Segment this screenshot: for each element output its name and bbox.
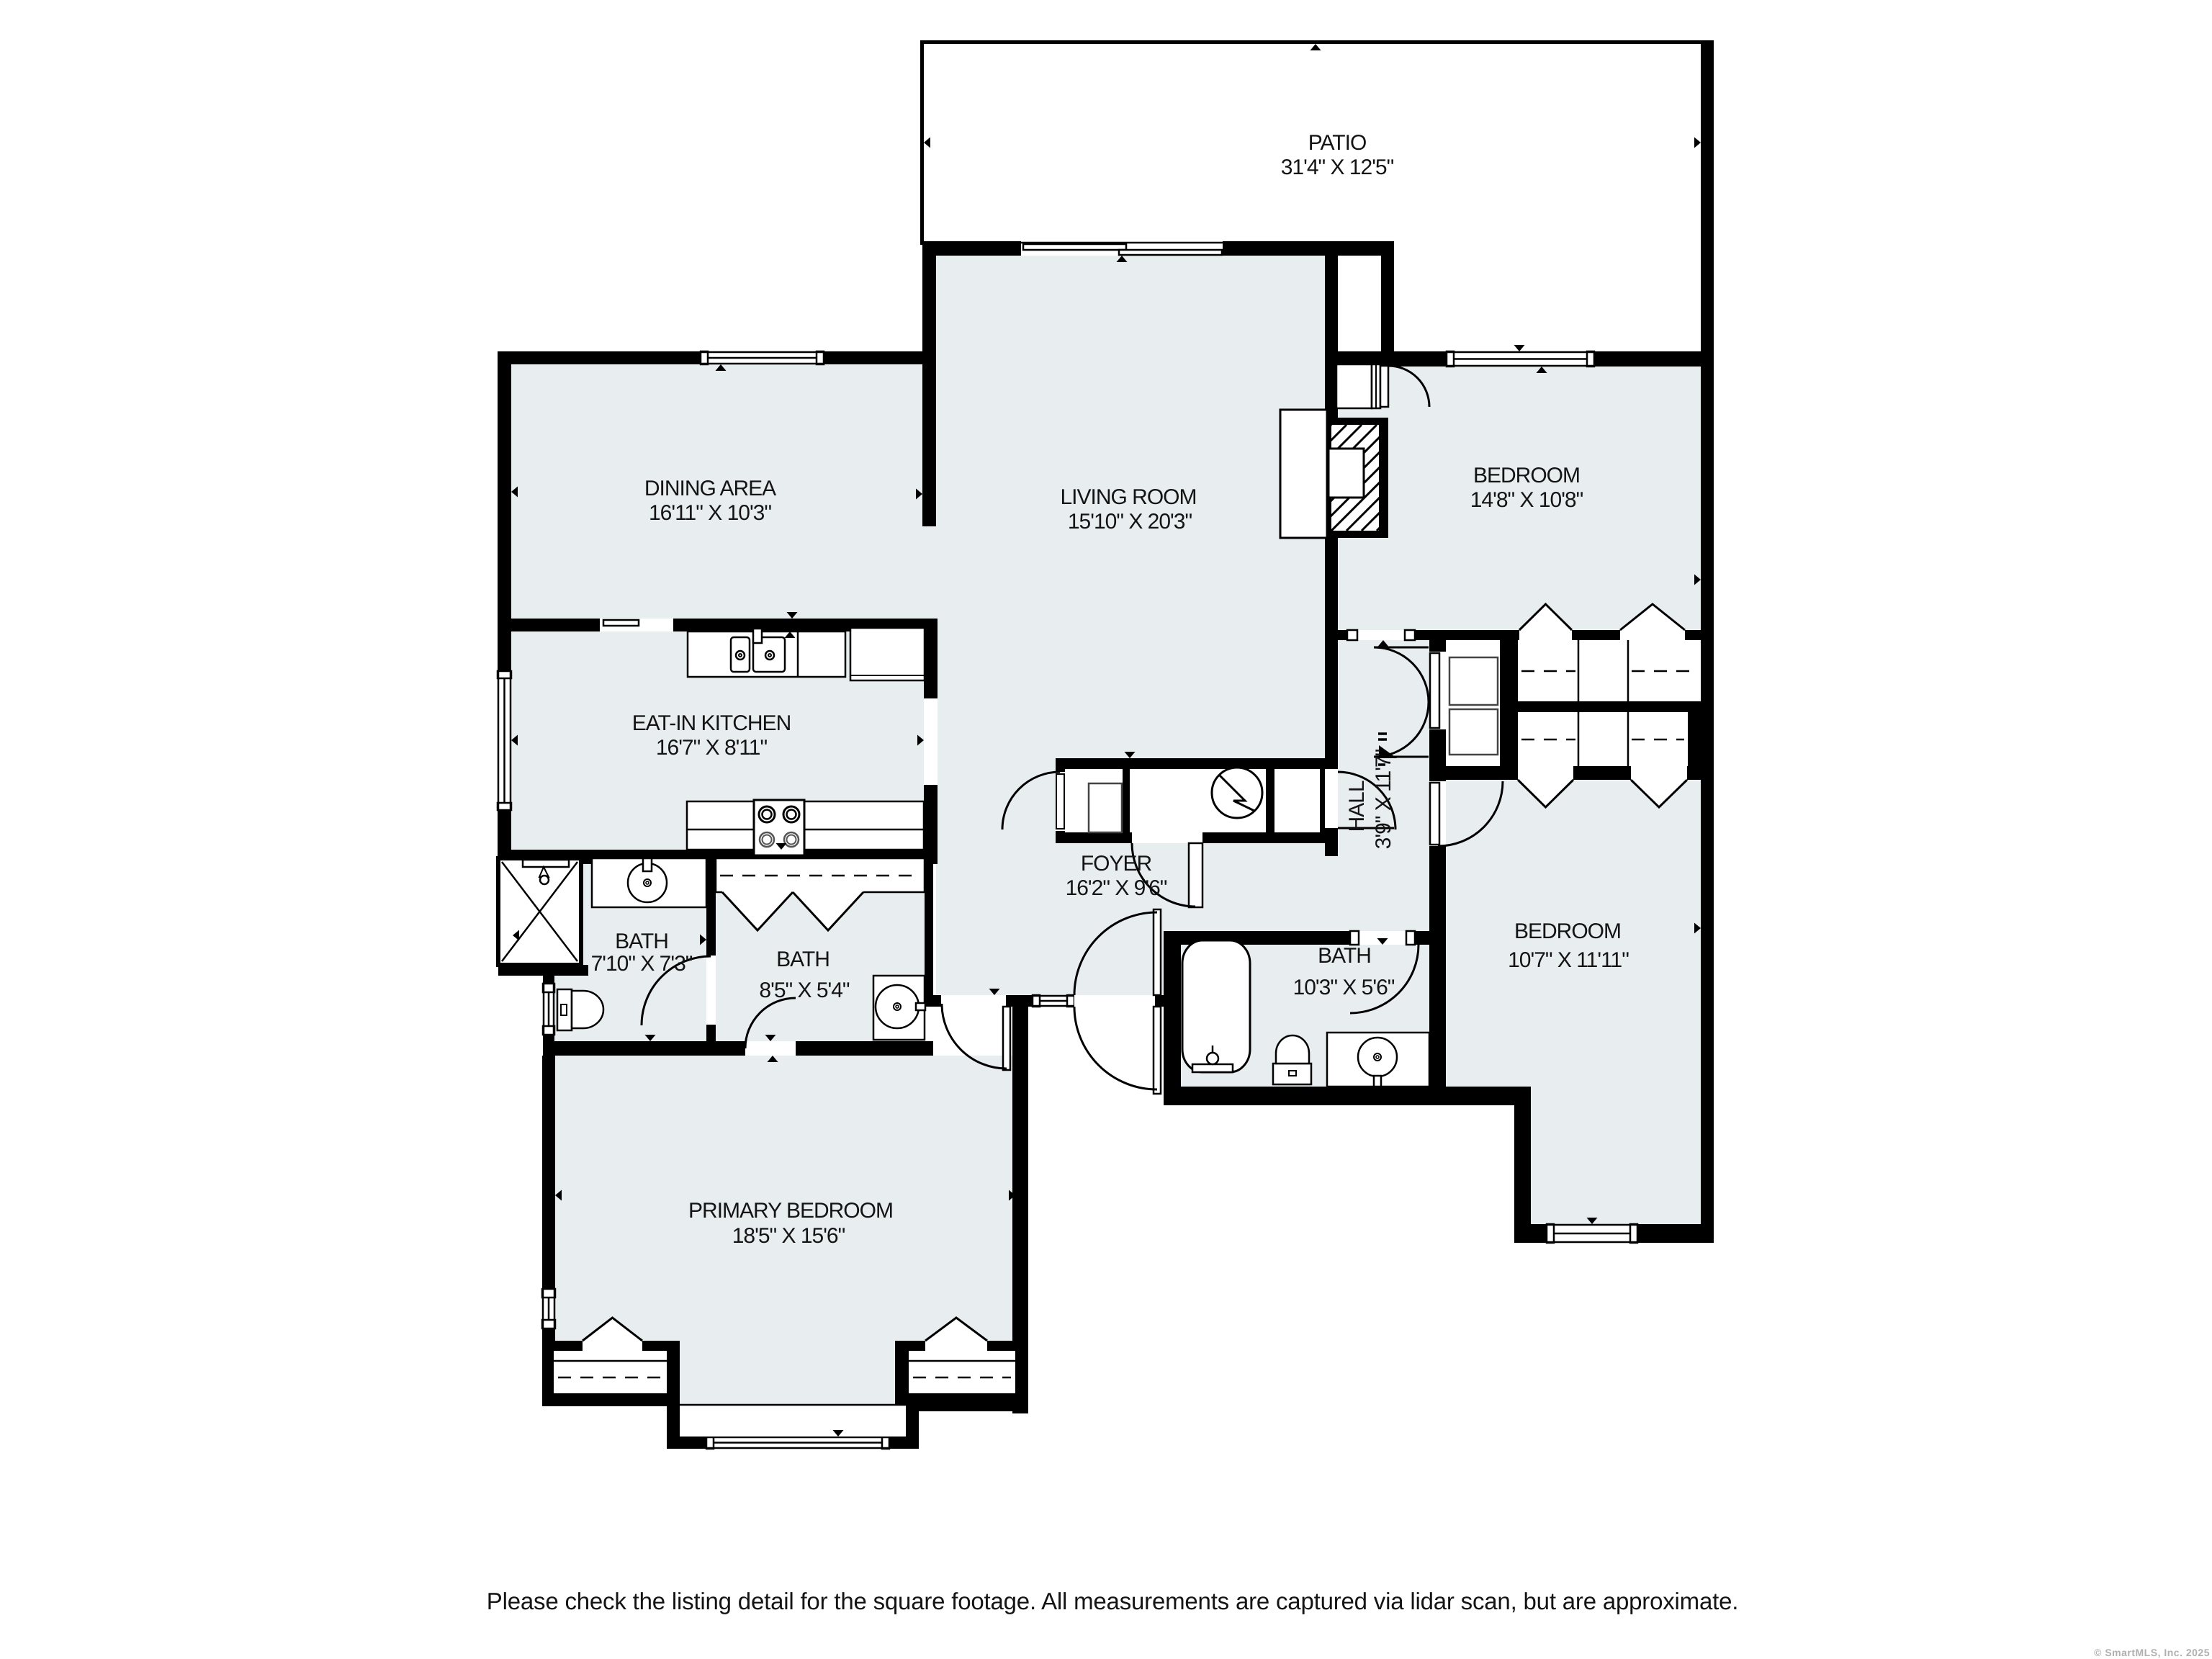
svg-text:DINING AREA: DINING AREA bbox=[644, 477, 776, 500]
svg-text:BATH: BATH bbox=[776, 948, 829, 971]
svg-text:© SmartMLS, Inc. 2025: © SmartMLS, Inc. 2025 bbox=[2094, 1647, 2210, 1658]
svg-text:10'7" X 11'11": 10'7" X 11'11" bbox=[1508, 948, 1629, 972]
svg-text:LIVING ROOM: LIVING ROOM bbox=[1060, 485, 1196, 509]
svg-text:PATIO: PATIO bbox=[1308, 131, 1367, 155]
svg-text:7'10" X 7'3": 7'10" X 7'3" bbox=[591, 952, 693, 976]
svg-text:BEDROOM: BEDROOM bbox=[1514, 920, 1621, 943]
svg-text:14'8" X 10'8": 14'8" X 10'8" bbox=[1470, 488, 1583, 512]
svg-text:HALL: HALL bbox=[1345, 781, 1369, 832]
svg-text:16'11" X 10'3": 16'11" X 10'3" bbox=[649, 501, 771, 525]
svg-text:16'2" X 9'6": 16'2" X 9'6" bbox=[1066, 876, 1167, 900]
svg-text:18'5" X 15'6": 18'5" X 15'6" bbox=[732, 1224, 845, 1248]
svg-text:BATH: BATH bbox=[1318, 944, 1371, 968]
svg-text:BATH: BATH bbox=[615, 930, 668, 953]
svg-text:15'10" X 20'3": 15'10" X 20'3" bbox=[1068, 510, 1192, 534]
svg-text:31'4" X 12'5": 31'4" X 12'5" bbox=[1281, 156, 1394, 179]
svg-text:PRIMARY BEDROOM: PRIMARY BEDROOM bbox=[688, 1199, 893, 1223]
svg-text:8'5" X 5'4": 8'5" X 5'4" bbox=[759, 979, 850, 1002]
svg-text:Please check the listing detai: Please check the listing detail for the … bbox=[487, 1588, 1738, 1614]
svg-text:16'7" X 8'11": 16'7" X 8'11" bbox=[656, 736, 768, 760]
svg-text:EAT-IN KITCHEN: EAT-IN KITCHEN bbox=[632, 711, 791, 735]
svg-text:FOYER: FOYER bbox=[1081, 852, 1152, 876]
svg-text:3'9" X 11'7": 3'9" X 11'7" bbox=[1372, 749, 1395, 849]
svg-text:10'3" X 5'6": 10'3" X 5'6" bbox=[1293, 976, 1395, 999]
svg-text:BEDROOM: BEDROOM bbox=[1473, 464, 1580, 487]
